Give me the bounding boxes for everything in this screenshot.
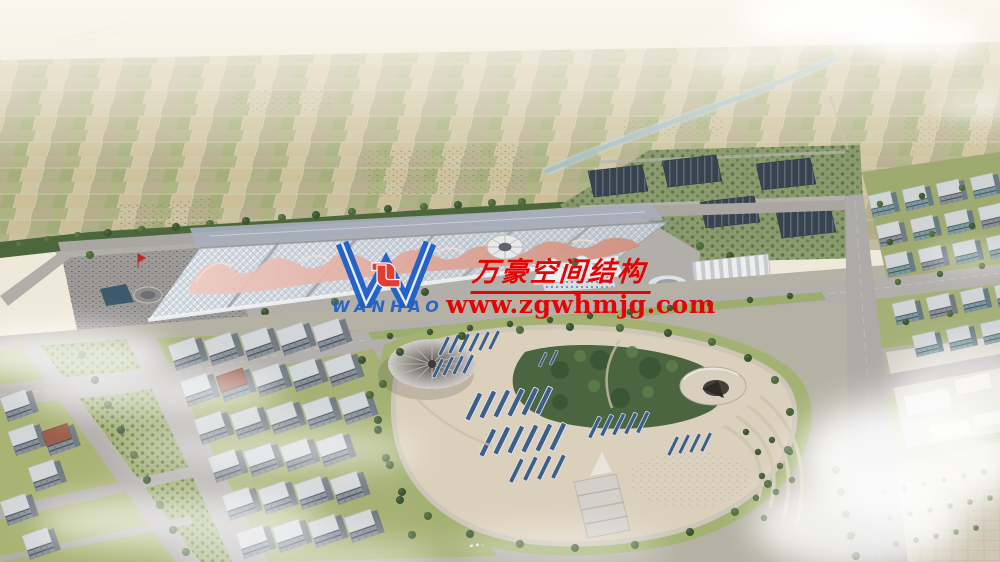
aerial-render: WANHAO 万豪空间结构 www.zgwhmjg.com <box>0 0 1000 562</box>
rendered-scene <box>0 0 1000 562</box>
dome-pavilion <box>487 235 523 259</box>
funnel-pavilion <box>680 367 746 405</box>
